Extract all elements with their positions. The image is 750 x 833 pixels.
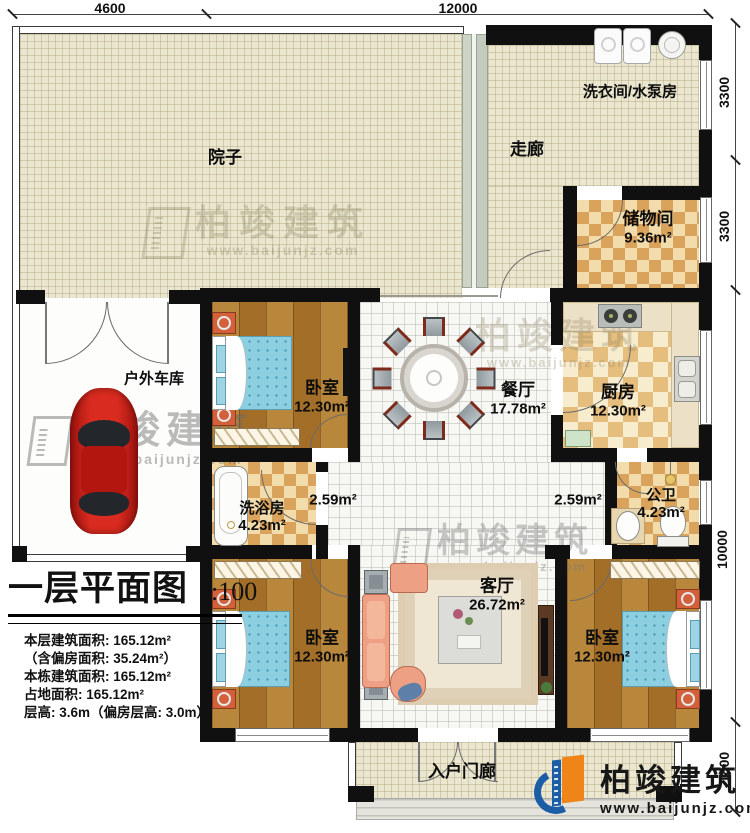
room-label-corridor: 走廊 [510, 140, 544, 160]
wall [200, 728, 235, 742]
door-leaf [45, 302, 47, 364]
room-label-laundry: 洗衣间/水泵房 [583, 83, 677, 100]
dimension-right-2: 3300 [716, 192, 732, 260]
toilet-tank [657, 536, 689, 547]
washing-machine [594, 28, 622, 64]
wall [200, 448, 312, 462]
dimension-top-left: 4600 [60, 0, 160, 16]
room-label-yard: 院子 [208, 148, 242, 168]
table-decor-leaf [465, 617, 473, 625]
room-label-kitchen: 厨房12.30m² [590, 383, 646, 420]
room-label-bedroom-top: 卧室12.30m² [294, 379, 350, 416]
plan-scale: 1:100 [198, 577, 257, 607]
wall [699, 43, 712, 60]
wall [348, 448, 360, 462]
sofa-cushion [367, 643, 385, 681]
room-label-hall-left: 2.59m² [309, 491, 357, 508]
wall [647, 448, 712, 462]
glass-divider-panel [462, 34, 472, 288]
window [700, 330, 712, 425]
table-decor-flower [453, 609, 463, 619]
washing-machine [623, 28, 651, 64]
room-label-living: 客厅26.72m² [469, 577, 525, 614]
room-label-bath: 洗浴房4.23m² [238, 500, 286, 535]
door-leaf [418, 742, 420, 782]
ceiling-lamp [665, 474, 676, 485]
car-rear-window [79, 492, 129, 516]
dimension-right-3: 10000 [714, 505, 730, 595]
stat-line: 本栋建筑面积: 165.12m² [24, 668, 258, 686]
pillow [690, 653, 700, 682]
corridor-laundry-floor [488, 45, 699, 186]
glass-divider-panel [476, 34, 488, 288]
wall [690, 728, 712, 742]
room-divider-line [380, 295, 498, 297]
door-leaf [167, 302, 169, 364]
floor-plan: 柏竣建筑 www.baijunjz.com 柏竣建筑 www.baijunjz.… [0, 0, 750, 833]
room-label-porch: 入户门廊 [428, 762, 496, 782]
armchair [364, 570, 388, 594]
bed-headboard [686, 611, 700, 687]
wall [316, 525, 328, 559]
tv [541, 618, 548, 676]
wall [316, 462, 328, 472]
room-label-dining: 餐厅17.78m² [490, 381, 546, 418]
burner-dot [628, 314, 632, 318]
stove [598, 304, 642, 328]
dining-chair [373, 368, 392, 390]
garage-door-post [16, 290, 45, 304]
stat-line: （含偏房面积: 35.24m²） [24, 650, 258, 668]
pillow [690, 620, 700, 649]
washer-door [601, 37, 616, 52]
dimension-line-right [735, 23, 736, 812]
wall [563, 288, 712, 302]
pillow [216, 377, 226, 405]
window [700, 197, 712, 263]
logo-building-icon [536, 754, 590, 818]
washer-door [630, 37, 645, 52]
wall [555, 559, 567, 728]
wall [551, 288, 563, 345]
sofa-cushion [367, 601, 385, 639]
kitchen-sink [674, 356, 700, 402]
logo-url-text: www.baijunjz.com [600, 800, 750, 817]
window [235, 728, 330, 742]
room-label-storage: 储物间9.36m² [623, 210, 674, 247]
sink-bowl [678, 360, 696, 377]
title-block: 一层平面图 1:100 本层建筑面积: 165.12m² （含偏房面积: 35.… [8, 560, 258, 722]
room-label-hall-right: 2.59m² [554, 491, 602, 508]
wall [699, 525, 712, 600]
wall [612, 545, 712, 559]
room-label-bedroom-left: 卧室12.30m² [294, 629, 350, 666]
logo-tower-blue [552, 759, 561, 806]
wall [551, 415, 563, 462]
stat-line: 本层建筑面积: 165.12m² [24, 632, 258, 650]
wall [348, 545, 360, 559]
window [590, 728, 690, 742]
car-roof [81, 446, 127, 494]
window [700, 480, 712, 525]
nightstand [212, 312, 236, 334]
plant [541, 682, 552, 693]
burner-dot [609, 314, 613, 318]
wall [498, 728, 590, 742]
stat-line: 占地面积: 165.12m² [24, 686, 258, 704]
wall [330, 728, 418, 742]
page-title: 一层平面图 [8, 560, 188, 611]
window [700, 60, 712, 130]
laundry-sink [658, 31, 686, 59]
nightstand [676, 589, 700, 609]
wall [563, 200, 577, 302]
stat-line: 层高: 3.6m（偏房层高: 3.0m） [24, 704, 258, 722]
drain [227, 521, 235, 529]
bed-headboard [212, 336, 226, 410]
sink-bowl [678, 381, 696, 398]
dimension-right-1: 3300 [716, 58, 732, 126]
wardrobe [214, 428, 300, 446]
room-label-wc: 公卫4.23m² [637, 487, 685, 522]
wall [200, 545, 312, 559]
kitchen-cabinet [565, 430, 591, 447]
car [70, 388, 138, 534]
logo-tower-orange [562, 755, 584, 804]
sofa [390, 563, 428, 593]
table-decor-tray [457, 635, 481, 649]
wall [622, 186, 712, 200]
yard-top-wall [12, 26, 464, 34]
wall [563, 186, 577, 200]
nightstand [676, 689, 700, 709]
sink-basin [664, 37, 680, 53]
wardrobe [610, 561, 700, 579]
garage-door-post [169, 290, 202, 304]
dining-table-center [426, 370, 442, 386]
room-label-garage: 户外车库 [124, 370, 184, 387]
dining-chair [423, 421, 445, 440]
wall [545, 545, 570, 559]
dining-chair [423, 317, 445, 336]
dining-table [400, 344, 468, 412]
sofa [362, 594, 390, 688]
dimension-top-right: 12000 [408, 0, 508, 16]
brand-logo: 柏竣建筑 www.baijunjz.com [536, 754, 750, 818]
bed-sheet [226, 336, 247, 410]
wall [200, 288, 380, 302]
bed-sheet [666, 611, 687, 687]
title-rule [8, 614, 242, 624]
window [700, 600, 712, 690]
logo-brand-text: 柏竣建筑 [600, 755, 750, 800]
wall-chunk [348, 786, 374, 802]
pillow [216, 345, 226, 373]
room-label-bedroom-right: 卧室12.30m² [574, 629, 630, 666]
